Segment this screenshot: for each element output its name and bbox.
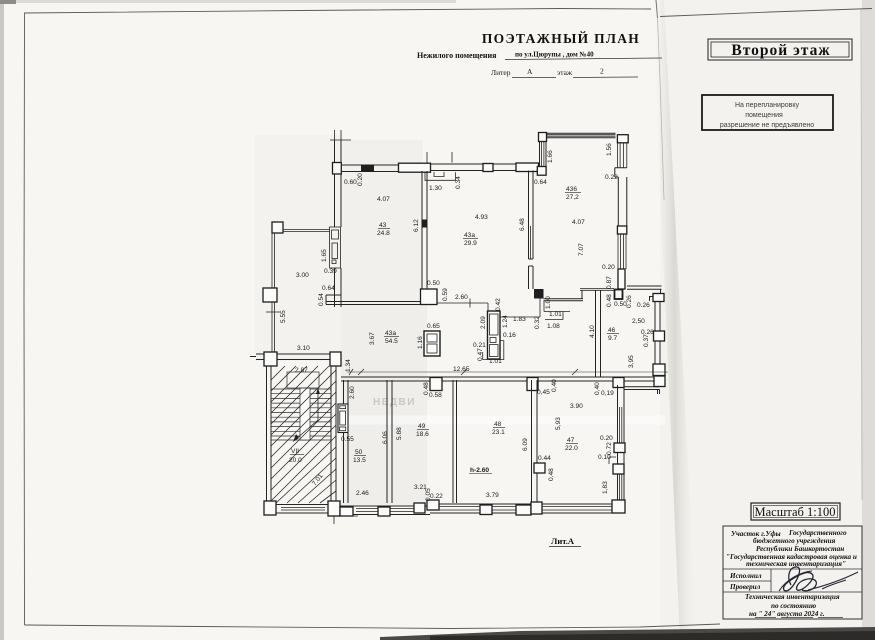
svg-text:0.39: 0.39 — [324, 268, 337, 275]
svg-text:0,45: 0,45 — [537, 389, 550, 396]
svg-text:4.93: 4.93 — [475, 214, 488, 221]
svg-text:12.65: 12.65 — [453, 366, 470, 373]
svg-text:0.44: 0.44 — [538, 455, 551, 462]
svg-text:47: 47 — [567, 437, 575, 444]
svg-text:0.54: 0.54 — [318, 293, 325, 306]
svg-text:1.30: 1.30 — [429, 185, 442, 192]
svg-text:0,40: 0,40 — [594, 382, 601, 395]
svg-text:1.56: 1.56 — [606, 143, 613, 156]
svg-text:0.48: 0.48 — [548, 468, 555, 481]
svg-text:1.00: 1.00 — [545, 296, 552, 309]
svg-text:5.55: 5.55 — [280, 310, 287, 323]
svg-text:Масштаб 1:100: Масштаб 1:100 — [755, 505, 836, 519]
svg-text:2.60: 2.60 — [455, 294, 468, 301]
svg-text:46: 46 — [608, 327, 616, 334]
svg-text:А: А — [527, 67, 533, 76]
svg-text:1.24: 1.24 — [502, 315, 509, 328]
svg-text:50: 50 — [355, 449, 363, 456]
svg-text:0.59: 0.59 — [442, 288, 449, 301]
svg-text:1.16: 1.16 — [417, 336, 424, 349]
svg-text:1.01: 1.01 — [549, 311, 562, 318]
svg-text:3.00: 3.00 — [296, 272, 309, 279]
svg-text:0.64: 0.64 — [534, 179, 547, 186]
svg-text:3.79: 3.79 — [486, 492, 499, 499]
svg-text:1.08: 1.08 — [547, 323, 560, 330]
svg-text:На перепланировку: На перепланировку — [735, 102, 800, 109]
svg-text:Второй этаж: Второй этаж — [731, 42, 830, 59]
svg-text:по ул.Цюрупы , дом №40: по ул.Цюрупы , дом №40 — [515, 51, 594, 59]
svg-text:0.47: 0.47 — [477, 348, 484, 361]
svg-text:0.34: 0.34 — [455, 176, 462, 189]
svg-text:4.07: 4.07 — [377, 196, 390, 203]
svg-text:0.65: 0.65 — [427, 323, 440, 330]
svg-text:18.6: 18.6 — [416, 431, 429, 438]
svg-text:2: 2 — [600, 67, 604, 76]
svg-text:43а: 43а — [464, 232, 475, 239]
svg-text:VII: VII — [291, 448, 299, 455]
svg-text:0.60: 0.60 — [344, 179, 357, 186]
svg-text:0.32: 0.32 — [534, 316, 541, 329]
svg-text:Техническая инвентаризация: Техническая инвентаризация — [745, 593, 840, 601]
svg-text:ПОЭТАЖНЫЙ ПЛАН: ПОЭТАЖНЫЙ ПЛАН — [482, 31, 640, 46]
svg-text:0.72: 0.72 — [606, 442, 613, 455]
svg-text:2,50: 2,50 — [632, 318, 645, 325]
svg-text:Литер: Литер — [491, 68, 511, 77]
svg-text:0.26: 0.26 — [637, 302, 650, 309]
svg-text:48: 48 — [494, 421, 502, 428]
svg-text:6.12: 6.12 — [413, 219, 420, 232]
svg-text:0.55: 0.55 — [341, 436, 354, 443]
svg-text:2.46: 2.46 — [356, 490, 369, 497]
svg-text:на " 24" августа 2024 г.: на " 24" августа 2024 г. — [749, 610, 825, 618]
svg-text:2.60: 2.60 — [349, 386, 356, 399]
svg-text:0.16: 0.16 — [503, 332, 516, 339]
svg-text:Государственного: Государственного — [788, 529, 847, 537]
svg-text:13.5: 13.5 — [353, 457, 366, 464]
svg-text:23.1: 23.1 — [492, 429, 505, 436]
svg-text:0.20: 0.20 — [357, 173, 364, 186]
svg-text:24.8: 24.8 — [377, 230, 390, 237]
svg-text:2.87: 2.87 — [295, 367, 308, 374]
svg-text:h-2.60: h-2.60 — [470, 467, 489, 474]
svg-text:6.09: 6.09 — [522, 438, 529, 451]
svg-text:3.90: 3.90 — [570, 403, 583, 410]
svg-text:0.22: 0.22 — [605, 174, 618, 181]
svg-text:0.26: 0.26 — [626, 295, 633, 308]
svg-text:0.48: 0.48 — [423, 382, 430, 395]
svg-text:4.10: 4.10 — [589, 325, 596, 338]
svg-text:43: 43 — [379, 222, 387, 229]
svg-text:3.67: 3.67 — [369, 332, 376, 345]
svg-text:0.58: 0.58 — [429, 392, 442, 399]
svg-text:0.64: 0.64 — [322, 285, 335, 292]
svg-text:этаж: этаж — [557, 68, 573, 77]
svg-text:Исполнил: Исполнил — [729, 572, 762, 580]
svg-text:7.07: 7.07 — [578, 243, 585, 256]
svg-text:помещения: помещения — [745, 112, 783, 119]
svg-text:20.0: 20.0 — [289, 457, 302, 464]
svg-text:по состоянию: по состоянию — [771, 602, 816, 610]
svg-text:бюджетного учреждения: бюджетного учреждения — [753, 537, 836, 545]
svg-text:9.7: 9.7 — [608, 335, 617, 342]
svg-text:1.01: 1.01 — [489, 358, 502, 365]
svg-text:5.88: 5.88 — [396, 427, 403, 440]
svg-text:22.0: 22.0 — [565, 445, 578, 452]
svg-text:НЕДВИ: НЕДВИ — [373, 397, 416, 408]
svg-text:0.87: 0.87 — [606, 276, 613, 289]
svg-text:0.50: 0.50 — [427, 280, 440, 287]
svg-text:0.20: 0.20 — [602, 264, 615, 271]
svg-text:0.21: 0.21 — [473, 342, 486, 349]
svg-text:Республики Башкортостан: Республики Башкортостан — [756, 545, 844, 553]
svg-text:6.48: 6.48 — [519, 218, 526, 231]
svg-text:3,95: 3,95 — [628, 355, 635, 368]
svg-text:1.34: 1.34 — [345, 359, 352, 372]
svg-text:1.66: 1.66 — [547, 150, 554, 163]
svg-text:4.07: 4.07 — [572, 219, 585, 226]
svg-text:54.5: 54.5 — [385, 338, 398, 345]
svg-text:Лит.А: Лит.А — [551, 536, 575, 546]
svg-text:0.37: 0.37 — [643, 334, 650, 347]
svg-text:Проверил: Проверил — [729, 583, 761, 591]
svg-text:0,40: 0,40 — [551, 379, 558, 392]
svg-text:1,83: 1,83 — [602, 481, 609, 494]
svg-text:436: 436 — [566, 186, 577, 193]
svg-text:0.48: 0.48 — [606, 294, 613, 307]
svg-text:0,19: 0,19 — [601, 390, 614, 397]
svg-text:2.09: 2.09 — [480, 316, 487, 329]
svg-text:3.10: 3.10 — [297, 345, 310, 352]
svg-text:29.9: 29.9 — [464, 240, 477, 247]
svg-text:0.42: 0.42 — [495, 298, 502, 311]
svg-text:27,2: 27,2 — [566, 194, 579, 201]
svg-text:5,93: 5,93 — [555, 417, 562, 430]
svg-text:49: 49 — [418, 423, 426, 430]
svg-text:Нежилого помещения: Нежилого помещения — [417, 51, 497, 60]
svg-text:1.83: 1.83 — [513, 316, 526, 323]
svg-text:6.06: 6.06 — [382, 431, 389, 444]
svg-text:1.65: 1.65 — [321, 249, 328, 262]
svg-text:43а: 43а — [385, 330, 396, 337]
svg-text:0.05: 0.05 — [425, 488, 432, 501]
svg-text:разрешение не предъявлено: разрешение не предъявлено — [720, 122, 814, 129]
svg-text:0.20: 0.20 — [600, 435, 613, 442]
